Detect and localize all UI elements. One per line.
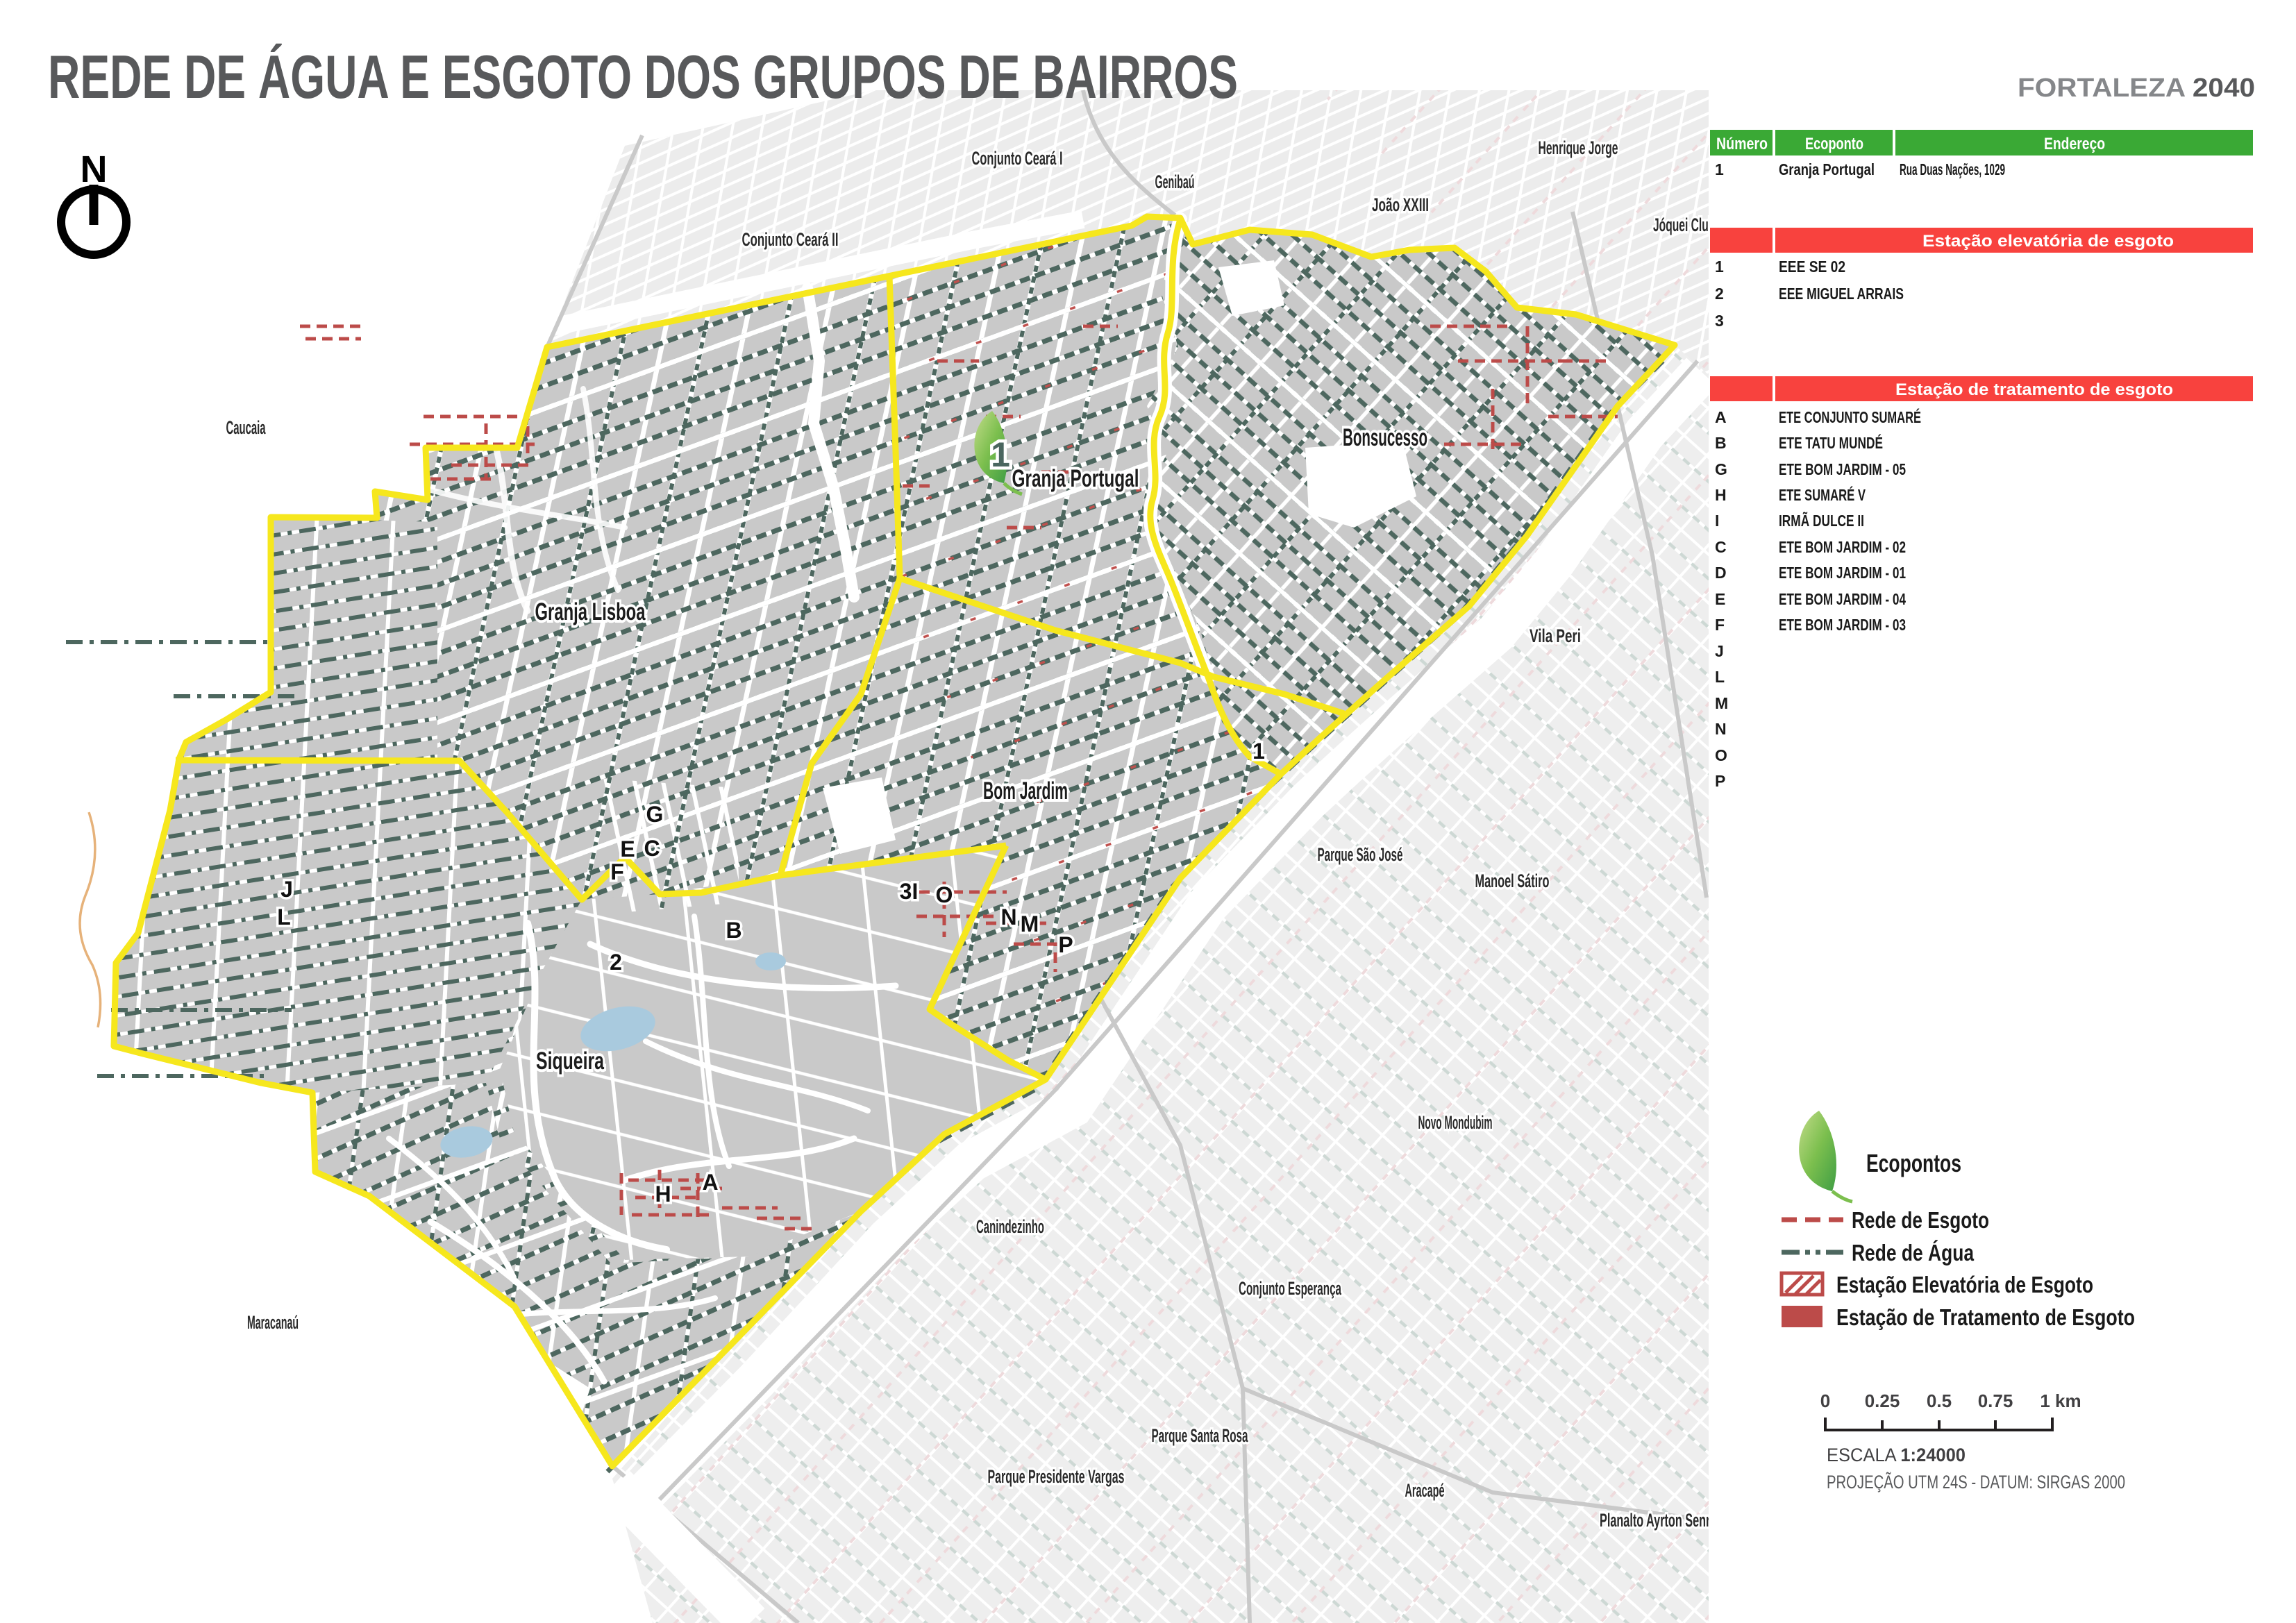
svg-text:ETE BOM JARDIM - 05: ETE BOM JARDIM - 05 <box>1779 460 1906 478</box>
svg-text:Ecopontos: Ecopontos <box>1866 1149 1961 1177</box>
svg-text:P: P <box>1715 772 1725 790</box>
svg-text:FORTALEZA 2040: FORTALEZA 2040 <box>2018 74 2255 103</box>
svg-text:1: 1 <box>1715 160 1724 178</box>
svg-text:L: L <box>277 905 291 930</box>
svg-text:Henrique Jorge: Henrique Jorge <box>1539 137 1618 158</box>
svg-text:L: L <box>1715 668 1725 686</box>
svg-text:0.25: 0.25 <box>1865 1390 1900 1411</box>
svg-text:A: A <box>1715 408 1727 426</box>
svg-text:B: B <box>1715 434 1727 452</box>
svg-text:N: N <box>1715 720 1727 738</box>
svg-text:Bonsucesso: Bonsucesso <box>1343 424 1427 451</box>
svg-text:Aracapé: Aracapé <box>1405 1480 1445 1501</box>
svg-text:Rede de Esgoto: Rede de Esgoto <box>1852 1207 1989 1233</box>
svg-text:1 km: 1 km <box>2040 1390 2081 1411</box>
svg-text:E: E <box>620 836 635 861</box>
svg-text:J: J <box>1715 642 1724 660</box>
svg-text:H: H <box>655 1181 671 1206</box>
svg-text:Granja Portugal: Granja Portugal <box>1779 160 1875 178</box>
svg-text:Parque Santa Rosa: Parque Santa Rosa <box>1152 1425 1249 1446</box>
svg-text:Rede de Água: Rede de Água <box>1852 1240 1975 1265</box>
svg-text:N: N <box>1000 905 1016 930</box>
svg-text:Endereço: Endereço <box>2044 135 2105 153</box>
svg-text:Estação Elevatória de Esgoto: Estação Elevatória de Esgoto <box>1836 1272 2093 1297</box>
svg-text:João XXIII: João XXIII <box>1372 194 1429 215</box>
svg-text:P: P <box>1058 932 1073 957</box>
svg-text:ETE BOM JARDIM - 02: ETE BOM JARDIM - 02 <box>1779 538 1906 556</box>
svg-text:ETE CONJUNTO SUMARÉ: ETE CONJUNTO SUMARÉ <box>1779 407 1921 426</box>
svg-text:G: G <box>1715 460 1727 478</box>
svg-text:ETE BOM JARDIM - 04: ETE BOM JARDIM - 04 <box>1779 590 1906 608</box>
svg-text:J: J <box>280 877 293 902</box>
svg-text:Siqueira: Siqueira <box>536 1048 604 1075</box>
svg-text:ETE BOM JARDIM - 01: ETE BOM JARDIM - 01 <box>1779 564 1906 582</box>
svg-text:3: 3 <box>1715 312 1724 330</box>
svg-text:Estação elevatória de esgoto: Estação elevatória de esgoto <box>1922 232 2174 251</box>
svg-text:E: E <box>1715 590 1725 608</box>
svg-text:Caucaia: Caucaia <box>226 417 267 438</box>
svg-text:G: G <box>646 802 664 827</box>
svg-text:Conjunto Ceará II: Conjunto Ceará II <box>742 229 839 250</box>
svg-text:0: 0 <box>1820 1390 1830 1411</box>
svg-text:1: 1 <box>1715 258 1724 276</box>
svg-text:I: I <box>1715 512 1719 530</box>
svg-text:Parque Presidente Vargas: Parque Presidente Vargas <box>988 1466 1125 1487</box>
svg-text:ETE BOM JARDIM - 03: ETE BOM JARDIM - 03 <box>1779 616 1906 634</box>
svg-text:3I: 3I <box>900 879 919 904</box>
svg-text:PROJEÇÃO UTM 24S - DATUM: SIRG: PROJEÇÃO UTM 24S - DATUM: SIRGAS 2000 <box>1827 1471 2125 1492</box>
svg-text:Conjunto Ceará I: Conjunto Ceará I <box>972 148 1063 169</box>
svg-text:2: 2 <box>610 950 622 975</box>
svg-text:M: M <box>1715 694 1728 712</box>
svg-text:Granja Lisboa: Granja Lisboa <box>535 598 646 625</box>
svg-text:F: F <box>610 859 624 884</box>
svg-text:Conjunto Esperança: Conjunto Esperança <box>1239 1278 1342 1299</box>
svg-text:Parque São José: Parque São José <box>1318 844 1403 865</box>
svg-text:Novo Mondubim: Novo Mondubim <box>1418 1112 1493 1133</box>
svg-text:ETE SUMARÉ V: ETE SUMARÉ V <box>1779 485 1866 504</box>
svg-text:ETE TATU MUNDÉ: ETE TATU MUNDÉ <box>1779 433 1883 452</box>
svg-text:Número: Número <box>1716 135 1768 153</box>
svg-text:O: O <box>936 882 953 907</box>
svg-text:H: H <box>1715 486 1727 504</box>
svg-text:B: B <box>726 918 741 943</box>
svg-text:0.75: 0.75 <box>1978 1390 2013 1411</box>
svg-text:Estação de tratamento de esgot: Estação de tratamento de esgoto <box>1895 380 2173 399</box>
svg-text:1: 1 <box>991 435 1010 474</box>
svg-text:ESCALA 1:24000: ESCALA 1:24000 <box>1827 1445 1966 1465</box>
svg-text:IRMÃ DULCE II: IRMÃ DULCE II <box>1779 511 1864 530</box>
svg-text:Rua Duas Nações, 1029: Rua Duas Nações, 1029 <box>1900 160 2005 178</box>
svg-text:Granja Portugal: Granja Portugal <box>1012 465 1139 492</box>
svg-text:0.5: 0.5 <box>1927 1390 1952 1411</box>
svg-text:M: M <box>1021 911 1039 936</box>
svg-text:Canindezinho: Canindezinho <box>976 1216 1044 1237</box>
svg-text:Maracanaú: Maracanaú <box>247 1312 299 1333</box>
svg-text:Ecoponto: Ecoponto <box>1805 135 1863 153</box>
svg-text:F: F <box>1715 616 1725 634</box>
svg-text:Bom Jardim: Bom Jardim <box>983 777 1068 805</box>
svg-text:N: N <box>81 149 108 190</box>
svg-text:REDE DE ÁGUA E ESGOTO DOS GRUP: REDE DE ÁGUA E ESGOTO DOS GRUPOS DE BAIR… <box>48 42 1238 111</box>
svg-text:Genibaú: Genibaú <box>1155 171 1195 192</box>
svg-text:Planalto Ayrton Senna: Planalto Ayrton Senna <box>1600 1510 1720 1531</box>
svg-text:Estação de Tratamento de Esgot: Estação de Tratamento de Esgoto <box>1836 1304 2135 1330</box>
svg-text:2: 2 <box>1715 285 1724 303</box>
svg-text:1: 1 <box>1252 739 1265 764</box>
svg-text:EEE MIGUEL ARRAIS: EEE MIGUEL ARRAIS <box>1779 285 1904 303</box>
svg-text:O: O <box>1715 746 1727 764</box>
svg-text:C: C <box>644 836 660 861</box>
svg-text:Vila Peri: Vila Peri <box>1530 625 1581 646</box>
svg-text:Manoel Sátiro: Manoel Sátiro <box>1475 871 1550 891</box>
svg-text:EEE SE 02: EEE SE 02 <box>1779 258 1845 276</box>
svg-text:A: A <box>702 1170 718 1195</box>
svg-text:D: D <box>1715 564 1727 582</box>
svg-text:C: C <box>1715 538 1727 556</box>
